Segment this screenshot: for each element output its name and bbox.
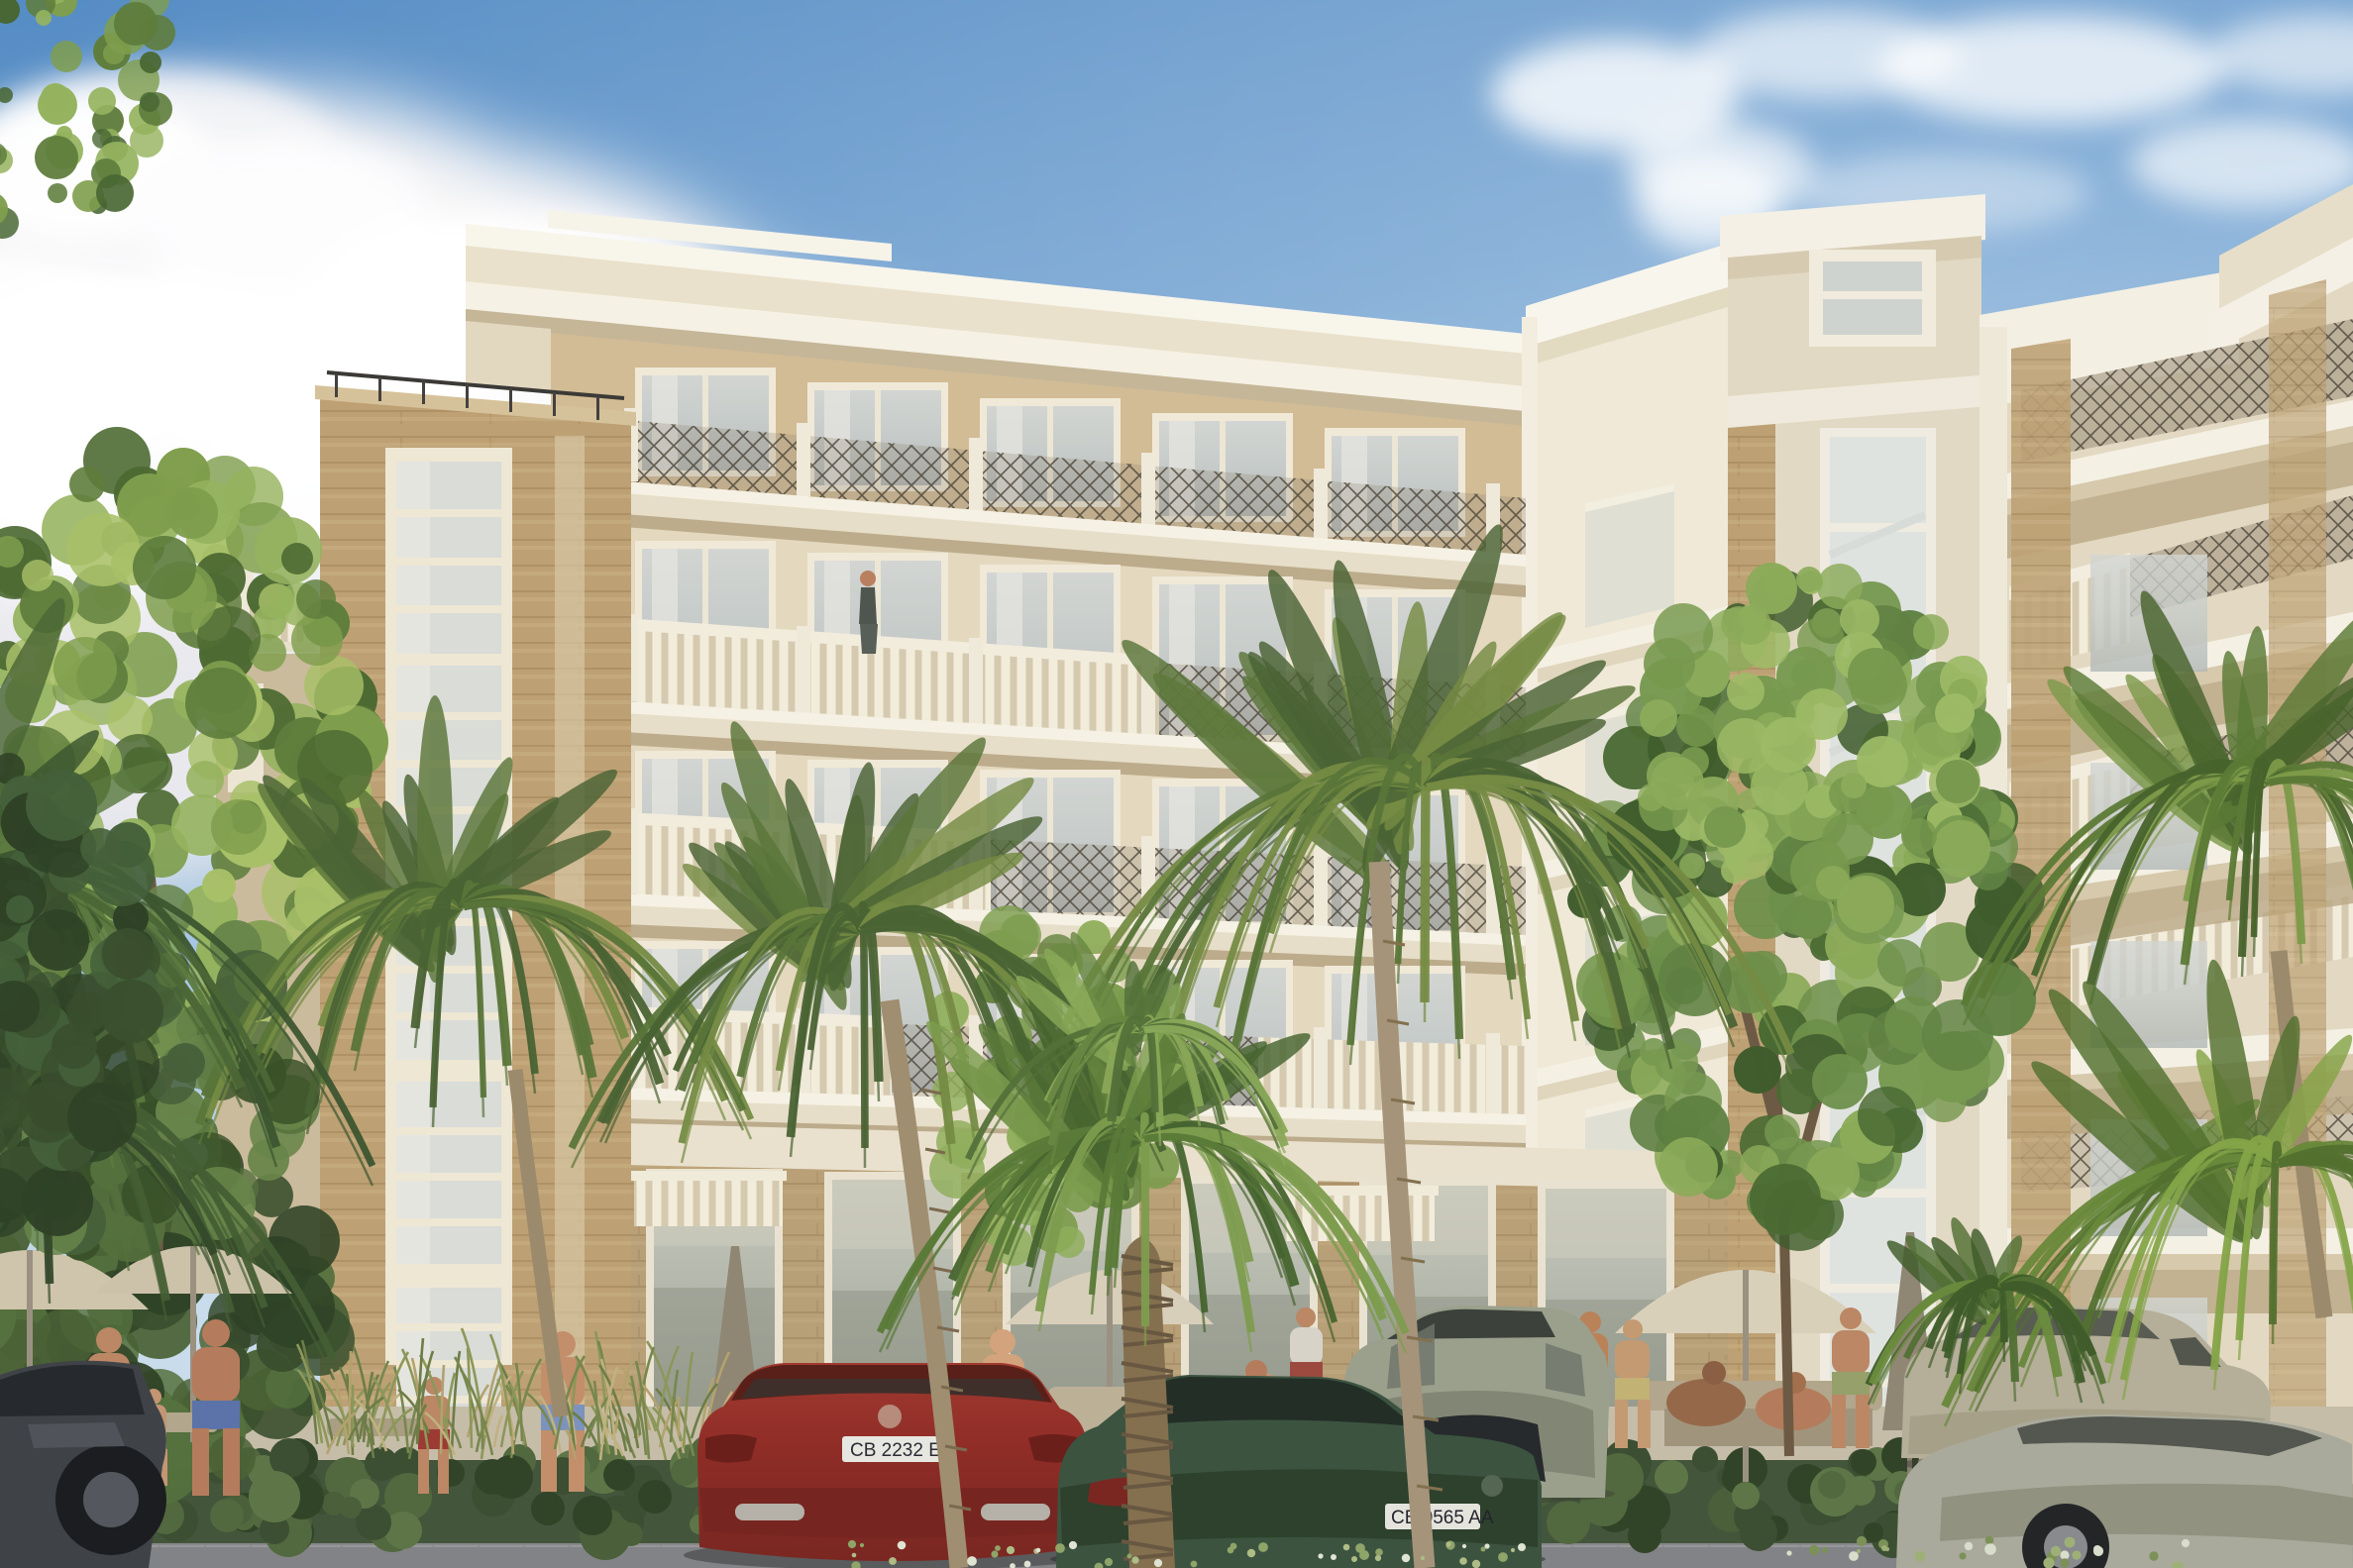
svg-text:CB 0565 AA: CB 0565 AA bbox=[1391, 1508, 1494, 1528]
